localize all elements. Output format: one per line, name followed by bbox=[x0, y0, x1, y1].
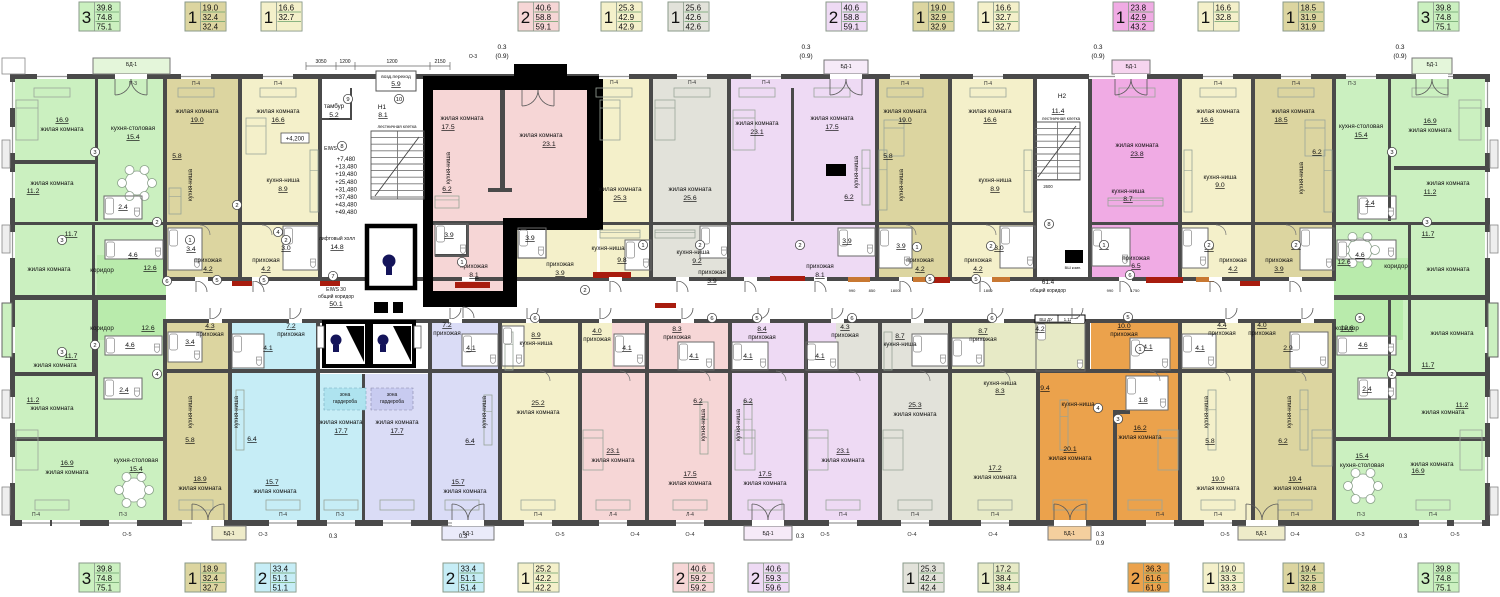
svg-text:25.6: 25.6 bbox=[683, 195, 696, 202]
svg-text:990: 990 bbox=[849, 288, 856, 293]
svg-text:4.1: 4.1 bbox=[263, 345, 273, 352]
svg-text:5: 5 bbox=[755, 316, 758, 322]
svg-text:кухня-ниша: кухня-ниша bbox=[1204, 395, 1210, 428]
svg-text:5: 5 bbox=[262, 278, 265, 284]
svg-text:кухня-ниша: кухня-ниша bbox=[899, 168, 905, 201]
svg-text:1: 1 bbox=[188, 569, 197, 588]
svg-text:19.0: 19.0 bbox=[931, 4, 947, 13]
svg-text:кухня-ниша: кухня-ниша bbox=[1203, 174, 1237, 181]
svg-text:17.5: 17.5 bbox=[683, 471, 696, 478]
svg-text:1: 1 bbox=[264, 8, 273, 27]
svg-text:жилая комната: жилая комната bbox=[810, 115, 854, 122]
svg-text:9: 9 bbox=[346, 97, 349, 103]
svg-text:3.4: 3.4 bbox=[186, 246, 196, 253]
svg-text:19.0: 19.0 bbox=[203, 4, 219, 13]
svg-text:(0.9): (0.9) bbox=[1091, 53, 1104, 60]
svg-text:8.1: 8.1 bbox=[815, 272, 825, 279]
svg-text:жилая комната: жилая комната bbox=[319, 419, 363, 426]
svg-text:П-4: П-4 bbox=[1291, 512, 1299, 518]
svg-text:тамбур: тамбур bbox=[324, 103, 345, 110]
svg-text:7: 7 bbox=[331, 274, 334, 280]
svg-text:гардероба: гардероба bbox=[380, 399, 404, 405]
svg-text:51.1: 51.1 bbox=[273, 583, 289, 592]
svg-text:жилая комната: жилая комната bbox=[1115, 142, 1159, 149]
svg-text:4.1: 4.1 bbox=[815, 353, 825, 360]
svg-text:2.9: 2.9 bbox=[1283, 345, 1293, 352]
svg-text:32.8: 32.8 bbox=[1216, 13, 1232, 22]
svg-text:2: 2 bbox=[155, 220, 158, 226]
svg-text:0.3: 0.3 bbox=[1093, 44, 1102, 51]
svg-text:12.6: 12.6 bbox=[1337, 259, 1350, 266]
svg-text:П-3: П-3 bbox=[336, 512, 344, 518]
svg-text:жилая комната: жилая комната bbox=[45, 469, 89, 476]
svg-text:39.8: 39.8 bbox=[1436, 565, 1452, 574]
svg-text:19.4: 19.4 bbox=[1301, 565, 1317, 574]
svg-text:50.1: 50.1 bbox=[329, 301, 342, 308]
svg-text:6.2: 6.2 bbox=[693, 398, 703, 405]
svg-text:О-4: О-4 bbox=[630, 532, 639, 538]
svg-text:17.5: 17.5 bbox=[825, 124, 838, 131]
svg-text:2.4: 2.4 bbox=[1365, 200, 1375, 207]
svg-text:зона: зона bbox=[340, 392, 351, 398]
svg-text:42.9: 42.9 bbox=[1131, 13, 1147, 22]
svg-text:40.6: 40.6 bbox=[536, 4, 552, 13]
svg-text:О-5: О-5 bbox=[122, 532, 131, 538]
svg-text:жилая комната: жилая комната bbox=[1273, 485, 1317, 492]
svg-text:31.9: 31.9 bbox=[1301, 13, 1317, 22]
svg-text:40.6: 40.6 bbox=[691, 565, 707, 574]
svg-text:жилая комната: жилая комната bbox=[591, 457, 635, 464]
svg-text:жилая комната: жилая комната bbox=[883, 108, 927, 115]
svg-text:П-4: П-4 bbox=[688, 80, 696, 86]
svg-text:40.6: 40.6 bbox=[844, 4, 860, 13]
svg-text:кухня-ниша: кухня-ниша bbox=[519, 340, 553, 347]
svg-text:П-4: П-4 bbox=[1429, 512, 1437, 518]
svg-text:2: 2 bbox=[698, 243, 701, 249]
svg-text:П-4: П-4 bbox=[1214, 81, 1222, 87]
svg-text:3050: 3050 bbox=[315, 59, 326, 65]
svg-text:0.3: 0.3 bbox=[329, 534, 338, 540]
svg-text:10.0: 10.0 bbox=[1117, 323, 1130, 330]
svg-text:коридор: коридор bbox=[1384, 263, 1408, 270]
svg-text:жилая комната: жилая комната bbox=[1118, 434, 1162, 441]
svg-text:(0.9): (0.9) bbox=[1393, 53, 1406, 60]
svg-text:БД-1: БД-1 bbox=[1426, 62, 1437, 68]
svg-text:58.8: 58.8 bbox=[536, 13, 552, 22]
svg-text:3: 3 bbox=[60, 350, 63, 356]
svg-text:18.9: 18.9 bbox=[203, 565, 219, 574]
svg-text:кухня-ниша: кухня-ниша bbox=[676, 249, 710, 256]
svg-text:4.0: 4.0 bbox=[1257, 322, 1267, 329]
svg-text:БД-1: БД-1 bbox=[840, 64, 851, 70]
svg-text:61.9: 61.9 bbox=[1146, 583, 1162, 592]
svg-text:75.1: 75.1 bbox=[97, 22, 113, 31]
svg-text:(0.9): (0.9) bbox=[495, 53, 508, 60]
svg-text:3: 3 bbox=[1425, 220, 1428, 226]
svg-text:О-4: О-4 bbox=[907, 532, 916, 538]
svg-text:прихожая: прихожая bbox=[277, 331, 305, 338]
svg-text:жилая комната: жилая комната bbox=[27, 266, 71, 273]
svg-text:8.7: 8.7 bbox=[1123, 196, 1133, 203]
svg-text:+49,480: +49,480 bbox=[335, 210, 358, 216]
svg-text:74.8: 74.8 bbox=[1436, 574, 1452, 583]
svg-text:прихожая: прихожая bbox=[1219, 257, 1247, 264]
svg-text:П-4: П-4 bbox=[901, 81, 909, 87]
svg-text:8.9: 8.9 bbox=[990, 186, 1000, 193]
svg-text:П-4: П-4 bbox=[274, 81, 282, 87]
svg-text:3: 3 bbox=[82, 8, 91, 27]
svg-text:5: 5 bbox=[974, 277, 977, 283]
svg-text:6.2: 6.2 bbox=[743, 398, 753, 405]
svg-text:1: 1 bbox=[1286, 569, 1295, 588]
svg-text:жилая комната: жилая комната bbox=[1426, 266, 1470, 273]
svg-text:4.2: 4.2 bbox=[973, 266, 983, 273]
svg-text:4.1: 4.1 bbox=[689, 353, 699, 360]
svg-text:жилая комната: жилая комната bbox=[519, 132, 563, 139]
svg-text:25.3: 25.3 bbox=[613, 195, 626, 202]
svg-text:14.8: 14.8 bbox=[330, 244, 343, 251]
svg-text:+19,480: +19,480 bbox=[335, 172, 358, 178]
svg-text:+37,480: +37,480 bbox=[335, 195, 358, 201]
svg-text:БД-1: БД-1 bbox=[1064, 531, 1075, 537]
svg-text:ВШ комн.: ВШ комн. bbox=[1065, 266, 1082, 270]
svg-text:32.7: 32.7 bbox=[203, 583, 219, 592]
svg-text:5.8: 5.8 bbox=[1205, 438, 1215, 445]
svg-text:3: 3 bbox=[1421, 8, 1430, 27]
svg-text:+25,480: +25,480 bbox=[335, 180, 358, 186]
svg-text:6.2: 6.2 bbox=[1278, 438, 1288, 445]
svg-text:42.6: 42.6 bbox=[686, 22, 702, 31]
svg-text:ВШ ДУ: ВШ ДУ bbox=[1039, 317, 1053, 322]
svg-text:прихожая: прихожая bbox=[1265, 257, 1293, 264]
svg-text:3: 3 bbox=[93, 150, 96, 156]
svg-text:23.1: 23.1 bbox=[750, 129, 763, 136]
svg-text:1: 1 bbox=[1286, 8, 1295, 27]
svg-text:жилая комната: жилая комната bbox=[973, 474, 1017, 481]
svg-text:4.2: 4.2 bbox=[1035, 326, 1045, 333]
svg-text:О-5: О-5 bbox=[1220, 532, 1229, 538]
svg-text:17.2: 17.2 bbox=[996, 565, 1012, 574]
svg-text:П-4: П-4 bbox=[279, 512, 287, 518]
svg-text:11.7: 11.7 bbox=[1422, 362, 1435, 369]
svg-text:16.6: 16.6 bbox=[271, 117, 284, 124]
svg-text:жилая комната: жилая комната bbox=[821, 457, 865, 464]
svg-text:17.7: 17.7 bbox=[334, 428, 347, 435]
svg-text:О-4: О-4 bbox=[685, 532, 694, 538]
svg-text:прихожая: прихожая bbox=[663, 334, 691, 341]
svg-text:О-3: О-3 bbox=[258, 532, 267, 538]
svg-text:5: 5 bbox=[928, 277, 931, 283]
svg-text:25.3: 25.3 bbox=[619, 4, 635, 13]
svg-text:+7,480: +7,480 bbox=[337, 157, 356, 163]
svg-text:кухня-столовая: кухня-столовая bbox=[1339, 123, 1383, 130]
svg-text:(0.9): (0.9) bbox=[799, 53, 812, 60]
svg-text:1200: 1200 bbox=[386, 59, 397, 65]
svg-text:12.6: 12.6 bbox=[1340, 325, 1353, 332]
svg-text:кухня-ниша: кухня-ниша bbox=[883, 341, 917, 348]
svg-text:2150: 2150 bbox=[434, 59, 445, 65]
svg-text:23.1: 23.1 bbox=[606, 448, 619, 455]
svg-text:4.3: 4.3 bbox=[205, 323, 215, 330]
svg-text:58.8: 58.8 bbox=[844, 13, 860, 22]
svg-text:5: 5 bbox=[1358, 316, 1361, 322]
svg-text:жилая комната: жилая комната bbox=[175, 108, 219, 115]
svg-text:32.7: 32.7 bbox=[279, 13, 295, 22]
svg-text:7.2: 7.2 bbox=[286, 323, 296, 330]
svg-text:кухня-ниша: кухня-ниша bbox=[1111, 188, 1145, 195]
svg-text:16.9: 16.9 bbox=[55, 117, 68, 124]
svg-text:75.1: 75.1 bbox=[97, 583, 113, 592]
svg-text:43.2: 43.2 bbox=[1131, 22, 1147, 31]
svg-text:16.9: 16.9 bbox=[1411, 468, 1424, 475]
svg-text:жилая комната: жилая комната bbox=[33, 362, 77, 369]
svg-text:1750: 1750 bbox=[1131, 288, 1141, 293]
svg-text:кухня-ниша: кухня-ниша bbox=[983, 380, 1017, 387]
svg-text:прихожая: прихожая bbox=[969, 336, 997, 343]
svg-text:+43,480: +43,480 bbox=[335, 203, 358, 209]
svg-text:4.2: 4.2 bbox=[1228, 266, 1238, 273]
svg-text:42.2: 42.2 bbox=[536, 574, 552, 583]
svg-text:16.9: 16.9 bbox=[60, 460, 73, 467]
svg-text:1800: 1800 bbox=[984, 288, 994, 293]
svg-text:12.6: 12.6 bbox=[141, 325, 154, 332]
svg-text:общий коридор: общий коридор bbox=[1030, 287, 1066, 294]
svg-text:33.3: 33.3 bbox=[1221, 574, 1237, 583]
svg-text:6: 6 bbox=[165, 279, 168, 285]
svg-text:жилая комната: жилая комната bbox=[1410, 461, 1454, 468]
svg-text:2: 2 bbox=[1207, 243, 1210, 249]
svg-text:П-4: П-4 bbox=[839, 512, 847, 518]
svg-text:16.6: 16.6 bbox=[279, 4, 295, 13]
svg-text:9.8: 9.8 bbox=[617, 257, 627, 264]
svg-text:6: 6 bbox=[1128, 273, 1131, 279]
svg-text:8.4: 8.4 bbox=[757, 326, 767, 333]
svg-text:2: 2 bbox=[521, 8, 530, 27]
svg-text:0.3: 0.3 bbox=[801, 44, 810, 51]
svg-text:П-4: П-4 bbox=[610, 80, 618, 86]
svg-text:1: 1 bbox=[641, 243, 644, 249]
svg-text:33.4: 33.4 bbox=[461, 565, 477, 574]
svg-text:59.1: 59.1 bbox=[536, 22, 552, 31]
svg-text:жилая комната: жилая комната bbox=[598, 186, 642, 193]
svg-text:32.9: 32.9 bbox=[931, 22, 947, 31]
svg-text:кухня-ниша: кухня-ниша bbox=[234, 395, 240, 428]
svg-text:кухня-ниша: кухня-ниша bbox=[1299, 161, 1305, 194]
svg-text:10: 10 bbox=[396, 97, 402, 103]
svg-text:БД-1: БД-1 bbox=[126, 62, 137, 68]
svg-text:990: 990 bbox=[1107, 288, 1114, 293]
svg-text:17.5: 17.5 bbox=[441, 124, 454, 131]
svg-text:кухня-ниша: кухня-ниша bbox=[446, 151, 452, 184]
svg-text:4.1: 4.1 bbox=[1195, 345, 1205, 352]
svg-text:2: 2 bbox=[446, 569, 455, 588]
svg-text:8: 8 bbox=[1047, 222, 1050, 228]
svg-text:5.8: 5.8 bbox=[883, 153, 893, 160]
svg-text:П-4: П-4 bbox=[984, 81, 992, 87]
svg-text:1: 1 bbox=[460, 260, 463, 266]
svg-text:18.5: 18.5 bbox=[1301, 4, 1317, 13]
svg-text:74.8: 74.8 bbox=[97, 574, 113, 583]
svg-text:3: 3 bbox=[1390, 150, 1393, 156]
svg-text:лестничная клетка: лестничная клетка bbox=[1042, 116, 1081, 121]
svg-text:прихожая: прихожая bbox=[698, 269, 726, 276]
svg-text:О-3: О-3 bbox=[469, 54, 478, 60]
svg-text:5: 5 bbox=[215, 278, 218, 284]
svg-text:42.9: 42.9 bbox=[619, 22, 635, 31]
svg-text:61.4: 61.4 bbox=[1042, 279, 1055, 286]
svg-text:6.4: 6.4 bbox=[247, 436, 257, 443]
svg-text:0.3: 0.3 bbox=[497, 44, 506, 51]
svg-text:16.2: 16.2 bbox=[1133, 425, 1146, 432]
svg-text:6: 6 bbox=[850, 316, 853, 322]
svg-text:прихожая: прихожая bbox=[1110, 331, 1138, 338]
svg-text:2.4: 2.4 bbox=[119, 387, 129, 394]
svg-text:31.9: 31.9 bbox=[1301, 22, 1317, 31]
svg-text:32.9: 32.9 bbox=[931, 13, 947, 22]
svg-text:6: 6 bbox=[990, 316, 993, 322]
svg-text:П-4: П-4 bbox=[32, 512, 40, 518]
svg-text:6: 6 bbox=[710, 316, 713, 322]
svg-text:4.6: 4.6 bbox=[1355, 252, 1365, 259]
svg-text:1: 1 bbox=[1138, 347, 1141, 353]
svg-text:3: 3 bbox=[1116, 417, 1119, 423]
svg-text:11.7: 11.7 bbox=[1422, 231, 1435, 238]
svg-text:кухня-ниша: кухня-ниша bbox=[266, 177, 300, 184]
svg-text:П-4: П-4 bbox=[1214, 512, 1222, 518]
svg-text:5: 5 bbox=[1126, 315, 1129, 321]
svg-text:1: 1 bbox=[188, 8, 197, 27]
svg-text:прихожая: прихожая bbox=[583, 336, 611, 343]
svg-text:О-5: О-5 bbox=[555, 532, 564, 538]
svg-text:75.1: 75.1 bbox=[1436, 22, 1452, 31]
svg-text:11.2: 11.2 bbox=[1424, 189, 1437, 196]
svg-text:19.0: 19.0 bbox=[1211, 476, 1224, 483]
svg-text:5.8: 5.8 bbox=[172, 153, 182, 160]
svg-text:прихожая: прихожая bbox=[1208, 330, 1236, 337]
svg-text:лестничная клетка: лестничная клетка bbox=[377, 124, 417, 129]
svg-text:33.3: 33.3 bbox=[1221, 583, 1237, 592]
svg-text:Н1: Н1 bbox=[378, 104, 387, 111]
svg-text:4.4: 4.4 bbox=[1217, 322, 1227, 329]
svg-text:П-4: П-4 bbox=[1292, 81, 1300, 87]
svg-text:39.8: 39.8 bbox=[97, 565, 113, 574]
svg-text:16.9: 16.9 bbox=[1423, 118, 1436, 125]
svg-text:25.2: 25.2 bbox=[536, 565, 552, 574]
svg-text:прихожая: прихожая bbox=[252, 257, 280, 264]
svg-text:1.8: 1.8 bbox=[1138, 397, 1148, 404]
svg-text:1800: 1800 bbox=[891, 288, 901, 293]
svg-text:1: 1 bbox=[916, 8, 925, 27]
svg-text:74.8: 74.8 bbox=[1436, 13, 1452, 22]
svg-text:жилая комната: жилая комната bbox=[668, 480, 712, 487]
svg-text:3: 3 bbox=[82, 569, 91, 588]
svg-text:кухня-ниша: кухня-ниша bbox=[701, 408, 707, 441]
svg-text:2: 2 bbox=[798, 243, 801, 249]
svg-text:4.0: 4.0 bbox=[592, 328, 602, 335]
svg-text:8.1: 8.1 bbox=[469, 272, 479, 279]
svg-text:П-4: П-4 bbox=[534, 512, 542, 518]
svg-text:32.4: 32.4 bbox=[203, 13, 219, 22]
svg-text:2: 2 bbox=[583, 288, 586, 294]
svg-text:3: 3 bbox=[1421, 569, 1430, 588]
svg-text:1: 1 bbox=[188, 238, 191, 244]
svg-text:3.9: 3.9 bbox=[707, 278, 717, 285]
svg-text:1: 1 bbox=[906, 569, 915, 588]
svg-text:32.8: 32.8 bbox=[1301, 583, 1317, 592]
svg-text:прихожая: прихожая bbox=[546, 261, 574, 268]
svg-text:1: 1 bbox=[1116, 8, 1125, 27]
svg-text:О-5: О-5 bbox=[820, 532, 829, 538]
svg-text:19.0: 19.0 bbox=[898, 117, 911, 124]
svg-text:38.4: 38.4 bbox=[996, 574, 1012, 583]
svg-text:Л-4: Л-4 bbox=[686, 512, 694, 518]
svg-text:жилая комната: жилая комната bbox=[1271, 108, 1315, 115]
svg-text:16.6: 16.6 bbox=[996, 4, 1012, 13]
svg-text:8.7: 8.7 bbox=[895, 333, 905, 340]
svg-text:4.2: 4.2 bbox=[203, 266, 213, 273]
svg-text:прихожая: прихожая bbox=[806, 263, 834, 270]
svg-text:+31,480: +31,480 bbox=[335, 187, 358, 193]
svg-text:БД-1: БД-1 bbox=[223, 531, 234, 537]
svg-text:жилая комната: жилая комната bbox=[1196, 485, 1240, 492]
svg-text:4.3: 4.3 bbox=[840, 324, 850, 331]
svg-text:кухня-ниша: кухня-ниша bbox=[1061, 401, 1095, 408]
svg-text:жилая комната: жилая комната bbox=[440, 115, 484, 122]
svg-text:19.0: 19.0 bbox=[1221, 565, 1237, 574]
svg-text:42.4: 42.4 bbox=[921, 574, 937, 583]
svg-text:17.5: 17.5 bbox=[758, 471, 771, 478]
svg-text:2: 2 bbox=[93, 343, 96, 349]
svg-text:П-4: П-4 bbox=[991, 512, 999, 518]
svg-text:кухня-столовая: кухня-столовая bbox=[111, 125, 155, 132]
svg-text:15.4: 15.4 bbox=[1355, 453, 1368, 460]
svg-text:3.9: 3.9 bbox=[444, 232, 454, 239]
svg-text:жилая комната: жилая комната bbox=[668, 186, 712, 193]
svg-text:7.2: 7.2 bbox=[442, 322, 452, 329]
svg-text:8.3: 8.3 bbox=[995, 388, 1005, 395]
svg-text:8.1: 8.1 bbox=[378, 112, 388, 119]
svg-text:20.1: 20.1 bbox=[1063, 446, 1076, 453]
svg-text:16.6: 16.6 bbox=[1216, 4, 1232, 13]
svg-text:2: 2 bbox=[1294, 243, 1297, 249]
svg-text:2: 2 bbox=[676, 569, 685, 588]
svg-text:59.1: 59.1 bbox=[844, 22, 860, 31]
svg-text:2.4: 2.4 bbox=[118, 204, 128, 211]
svg-text:6.5: 6.5 bbox=[1131, 263, 1141, 270]
svg-text:1: 1 bbox=[1206, 569, 1215, 588]
svg-text:О-4: О-4 bbox=[988, 532, 997, 538]
svg-text:17.7: 17.7 bbox=[390, 428, 403, 435]
svg-text:3: 3 bbox=[60, 238, 63, 244]
svg-text:9.4: 9.4 bbox=[1040, 385, 1050, 392]
svg-text:+4,200: +4,200 bbox=[286, 137, 305, 143]
svg-text:23.8: 23.8 bbox=[1130, 151, 1143, 158]
svg-text:36.3: 36.3 bbox=[1146, 565, 1162, 574]
svg-text:Л-4: Л-4 bbox=[609, 512, 617, 518]
svg-text:жилая комната: жилая комната bbox=[1196, 108, 1240, 115]
svg-text:кухня-ниша: кухня-ниша bbox=[854, 155, 860, 188]
svg-text:жилая комната: жилая комната bbox=[893, 411, 937, 418]
svg-text:32.4: 32.4 bbox=[203, 22, 219, 31]
svg-text:6.2: 6.2 bbox=[442, 186, 452, 193]
svg-text:0.9: 0.9 bbox=[1096, 541, 1105, 547]
svg-text:25.3: 25.3 bbox=[908, 402, 921, 409]
svg-text:11.2: 11.2 bbox=[27, 188, 40, 195]
svg-text:6.2: 6.2 bbox=[1312, 149, 1322, 156]
svg-text:1: 1 bbox=[915, 245, 918, 251]
svg-text:гардероба: гардероба bbox=[333, 399, 357, 405]
svg-text:25.2: 25.2 bbox=[531, 400, 544, 407]
